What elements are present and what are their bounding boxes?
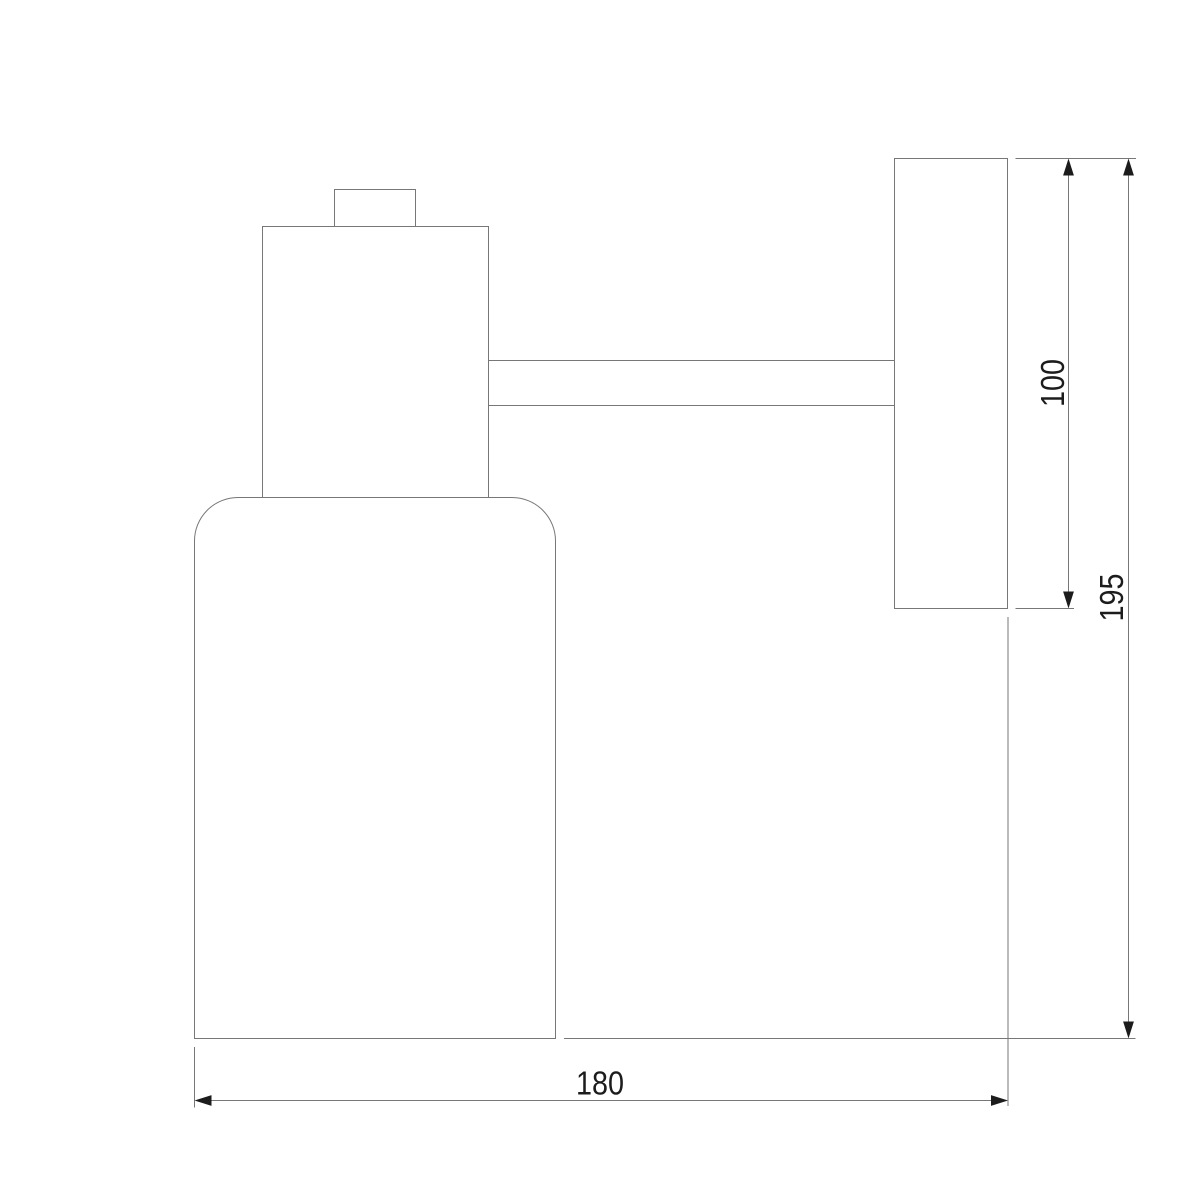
svg-text:180: 180 — [576, 1066, 624, 1103]
svg-text:195: 195 — [1094, 574, 1131, 622]
svg-text:100: 100 — [1035, 359, 1072, 407]
